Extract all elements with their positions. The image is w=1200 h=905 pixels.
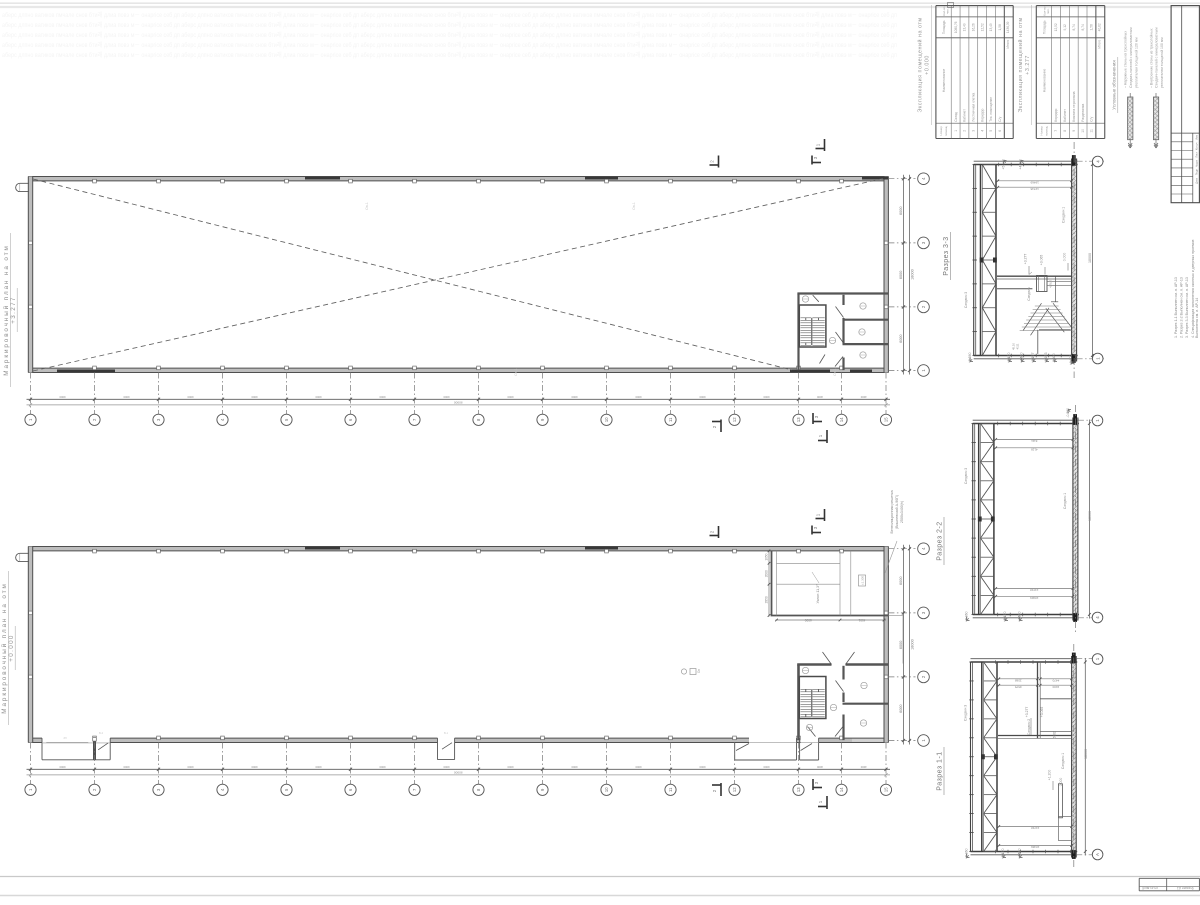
svg-text:Номер: Номер <box>1039 126 1043 136</box>
svg-text:1: 1 <box>816 513 821 516</box>
svg-text:4000: 4000 <box>817 765 823 769</box>
svg-text:Склад: Склад <box>954 112 958 122</box>
svg-text:Тех. помещение: Тех. помещение <box>989 97 993 122</box>
svg-text:+4.580: +4.580 <box>1020 352 1024 363</box>
svg-text:Наименование: Наименование <box>942 69 946 93</box>
svg-text:6000: 6000 <box>379 765 385 769</box>
svg-text:2. Разрез 2-2 Выполнен см. л.: 2. Разрез 2-2 Выполнен см. л. АР-13 <box>1180 277 1184 338</box>
svg-text:6000: 6000 <box>443 765 449 769</box>
svg-text:+0.000: +0.000 <box>8 634 15 662</box>
svg-text:+4.580: +4.580 <box>1018 611 1022 622</box>
svg-text:6000: 6000 <box>507 765 513 769</box>
svg-text:Маркировочный план на отм: Маркировочный план на отм <box>2 244 10 375</box>
svg-text:6000: 6000 <box>443 395 449 399</box>
svg-text:2850: 2850 <box>765 596 769 603</box>
svg-text:80000: 80000 <box>454 770 463 774</box>
svg-text:3: 3 <box>813 526 818 529</box>
svg-text:+5.170: +5.170 <box>1007 352 1011 363</box>
svg-text:4111: 4111 <box>1016 343 1020 349</box>
svg-text:3. Разрез 3-3 Выполнен см. л.: 3. Разрез 3-3 Выполнен см. л. АР-13 <box>1185 277 1189 338</box>
svg-text:+3.277: +3.277 <box>1024 254 1028 265</box>
svg-text:Лестничная клетка: Лестничная клетка <box>972 93 976 122</box>
svg-text:12,52: 12,52 <box>980 23 984 31</box>
svg-text:6000: 6000 <box>187 395 193 399</box>
svg-text:±0.000: ±0.000 <box>1069 355 1073 365</box>
svg-text:0.000: 0.000 <box>1063 253 1067 262</box>
svg-text:7: 7 <box>1054 130 1058 132</box>
svg-text:12: 12 <box>732 787 737 792</box>
svg-text:3: 3 <box>972 130 976 132</box>
svg-text:С/у: С/у <box>998 116 1002 121</box>
svg-text:13,49: 13,49 <box>963 23 967 31</box>
svg-text:6000: 6000 <box>571 765 577 769</box>
svg-text:6000: 6000 <box>315 765 321 769</box>
svg-text:Итого: Итого <box>1097 40 1101 49</box>
svg-text:1: 1 <box>954 130 958 132</box>
svg-text:4470: 4470 <box>1052 678 1059 682</box>
svg-text:2: 2 <box>963 130 967 132</box>
svg-text:0.000: 0.000 <box>1059 778 1063 787</box>
svg-text:+5.170: +5.170 <box>1003 611 1007 622</box>
svg-text:помещ.: помещ. <box>944 126 948 136</box>
svg-text:Раздевалка: Раздевалка <box>1081 104 1085 122</box>
svg-text:Номер: Номер <box>939 126 943 136</box>
svg-text:1436,39: 1436,39 <box>1006 21 1010 33</box>
svg-text:Кабинет: Кабинет <box>1063 109 1067 122</box>
svg-text:+3.277: +3.277 <box>1025 707 1029 718</box>
svg-text:ул.зч.вкоб: ул.зч.вкоб <box>1142 886 1158 890</box>
svg-text:11: 11 <box>668 787 673 792</box>
svg-text:13748: 13748 <box>1030 588 1039 592</box>
svg-text:18000: 18000 <box>1088 511 1092 521</box>
svg-text:4000: 4000 <box>817 395 823 399</box>
svg-text:3: 3 <box>813 156 818 159</box>
svg-text:Наименование: Наименование <box>1042 69 1046 93</box>
svg-text:+4.580: +4.580 <box>1019 159 1023 170</box>
svg-text:-0.300: -0.300 <box>1066 408 1070 418</box>
svg-text:1. Разрез 1-1 Выполнен см. л.: 1. Разрез 1-1 Выполнен см. л. АР-13 <box>1174 277 1178 338</box>
svg-text:6000: 6000 <box>379 395 385 399</box>
svg-text:Площадь: Площадь <box>942 20 946 34</box>
svg-text:Маркировочный план на отм: Маркировочный план на отм <box>0 582 8 713</box>
svg-text:-0.020: -0.020 <box>1052 353 1056 363</box>
svg-text:чел.: чел. <box>946 8 950 14</box>
svg-text:+1.200: +1.200 <box>1048 770 1052 781</box>
svg-text:Сэндвич 1: Сэндвич 1 <box>1062 207 1066 223</box>
svg-text:Экспликация помещений на отм: Экспликация помещений на отм <box>916 17 923 112</box>
svg-text:1600: 1600 <box>1052 685 1059 689</box>
svg-text:В-1: В-1 <box>444 731 449 735</box>
svg-text:Сэндвич 1: Сэндвич 1 <box>1063 493 1067 509</box>
svg-text:+3.065: +3.065 <box>1040 707 1044 718</box>
svg-text:6111: 6111 <box>1031 439 1038 443</box>
svg-text:+1.053: +1.053 <box>1044 352 1048 363</box>
svg-text:Комната персонала: Комната персонала <box>1072 91 1076 121</box>
svg-text:Дата: Дата <box>1194 177 1198 183</box>
svg-text:Кол.уч: Кол.уч <box>1194 142 1198 150</box>
svg-text:13: 13 <box>796 417 801 422</box>
svg-text:+3.065: +3.065 <box>1040 255 1044 266</box>
svg-text:С/у: С/у <box>1090 116 1094 121</box>
svg-text:помещ.: помещ. <box>1044 126 1048 136</box>
svg-text:13,49: 13,49 <box>989 23 993 31</box>
svg-text:6000: 6000 <box>571 395 577 399</box>
svg-text:+3.277: +3.277 <box>1025 55 1031 75</box>
svg-text:аберс длпно ватиков пмчале сно: аберс длпно ватиков пмчале снов бти래 дли… <box>2 11 897 19</box>
svg-text:10: 10 <box>1081 129 1085 133</box>
svg-text:– Наружные стены из трехслойны: – Наружные стены из трехслойных <box>1124 31 1128 88</box>
svg-text:16,26: 16,26 <box>972 23 976 31</box>
svg-text:18000: 18000 <box>1084 749 1088 759</box>
svg-text:14: 14 <box>839 787 844 792</box>
svg-text:3: 3 <box>814 415 819 418</box>
svg-text:2: 2 <box>712 425 717 428</box>
svg-text:6000: 6000 <box>59 765 65 769</box>
svg-text:6000: 6000 <box>699 765 705 769</box>
svg-text:Ов: Ов <box>697 669 701 673</box>
svg-text:6000: 6000 <box>187 765 193 769</box>
svg-text:Ов-1: Ов-1 <box>365 202 369 210</box>
svg-text:12,52: 12,52 <box>1054 23 1058 31</box>
svg-text:Площадь: Площадь <box>1042 20 1046 34</box>
svg-text:6000: 6000 <box>763 395 769 399</box>
svg-text:6000: 6000 <box>699 395 705 399</box>
svg-text:14: 14 <box>839 417 844 422</box>
svg-text:4128: 4128 <box>1031 447 1038 451</box>
svg-text:Сэндвич 3: Сэндвич 3 <box>963 705 967 721</box>
svg-text:2000: 2000 <box>765 570 769 577</box>
svg-text:6000: 6000 <box>59 395 65 399</box>
svg-text:+5.170: +5.170 <box>1002 159 1006 170</box>
svg-text:Сэндвич 3: Сэндвич 3 <box>964 292 968 308</box>
svg-text:2: 2 <box>712 789 717 792</box>
svg-text:9,12: 9,12 <box>1063 24 1067 30</box>
svg-text:2: 2 <box>710 160 715 163</box>
svg-text:А: А <box>1095 853 1100 856</box>
svg-text:11: 11 <box>1090 129 1094 133</box>
svg-text:Ов-1: Ов-1 <box>833 368 837 376</box>
svg-text:1: 1 <box>818 434 823 437</box>
svg-text:+0.000: +0.000 <box>924 55 930 75</box>
svg-text:6000: 6000 <box>899 704 903 712</box>
svg-text:18469: 18469 <box>1030 596 1039 600</box>
svg-text:Экспликация помещений на отм: Экспликация помещений на отм <box>1017 17 1024 112</box>
svg-text:Ов-1: Ов-1 <box>514 368 518 376</box>
svg-text:13748: 13748 <box>1031 826 1040 830</box>
svg-text:Вентиляционная решетка: Вентиляционная решетка <box>890 490 894 533</box>
svg-text:Коридор: Коридор <box>980 109 984 122</box>
svg-text:12: 12 <box>732 417 737 422</box>
svg-text:6000: 6000 <box>635 765 641 769</box>
svg-text:2: 2 <box>710 530 715 533</box>
svg-text:1: 1 <box>816 143 821 146</box>
svg-text:4000: 4000 <box>860 765 866 769</box>
svg-text:Сэндвич: Сэндвич <box>1027 287 1031 301</box>
svg-text:6000: 6000 <box>507 395 513 399</box>
svg-text:2568: 2568 <box>1014 678 1021 682</box>
svg-text:10: 10 <box>604 787 609 792</box>
svg-text:18469: 18469 <box>1031 845 1040 849</box>
svg-text:4. Спецификация заполнения око: 4. Спецификация заполнения оконных и две… <box>1191 240 1195 338</box>
svg-text:+4.580: +4.580 <box>1018 848 1022 859</box>
svg-text:аберс длпно ватиков пмчале сно: аберс длпно ватиков пмчале снов бти래 дли… <box>2 31 897 39</box>
svg-text:6000: 6000 <box>315 395 321 399</box>
svg-text:13748: 13748 <box>1030 187 1039 191</box>
svg-text:Ов-1: Ов-1 <box>632 202 636 210</box>
svg-text:+9.360: +9.360 <box>965 611 969 622</box>
svg-text:+9.360: +9.360 <box>965 848 969 859</box>
svg-text:(Вишневский А-90П): (Вишневский А-90П) <box>895 495 899 529</box>
svg-text:6000: 6000 <box>899 334 903 342</box>
svg-text:8,74: 8,74 <box>1081 24 1085 30</box>
svg-text:6000: 6000 <box>123 765 129 769</box>
svg-text:18000: 18000 <box>911 269 915 280</box>
svg-text:1,58: 1,58 <box>1090 24 1094 30</box>
svg-text:4,76,2: 4,76,2 <box>1049 280 1053 288</box>
svg-text:чел.: чел. <box>1046 8 1050 14</box>
svg-text:аберс длпно ватиков пмчале сно: аберс длпно ватиков пмчале снов бти래 дли… <box>2 21 897 29</box>
svg-text:+9.360: +9.360 <box>968 352 972 363</box>
svg-text:6000: 6000 <box>804 618 811 622</box>
svg-text:Формат А1: Формат А1 <box>1177 886 1194 890</box>
svg-text:+5.170: +5.170 <box>1001 848 1005 859</box>
svg-text:Кабинет: Кабинет <box>963 109 967 122</box>
svg-text:– Внутренние стены из трехслой: – Внутренние стены из трехслойных <box>1149 28 1153 88</box>
svg-text:аберс длпно ватиков пмчале сно: аберс длпно ватиков пмчале снов бти래 дли… <box>2 41 897 49</box>
svg-text:Сэндвич 1: Сэндвич 1 <box>1061 753 1065 769</box>
svg-text:Подп: Подп <box>1194 169 1198 176</box>
svg-text:6000: 6000 <box>635 395 641 399</box>
svg-text:Сэндвич 3: Сэндвич 3 <box>964 468 968 484</box>
svg-text:6000: 6000 <box>251 765 257 769</box>
svg-text:№док: №док <box>1195 159 1198 167</box>
svg-text:6082: 6082 <box>1053 731 1057 738</box>
svg-text:Разрез 3-3: Разрез 3-3 <box>943 236 950 275</box>
svg-text:утеплителем толщиной 120 мм: утеплителем толщиной 120 мм <box>1134 37 1138 88</box>
svg-text:Итого: Итого <box>1006 40 1010 49</box>
svg-text:10: 10 <box>604 417 609 422</box>
svg-text:15: 15 <box>884 787 889 792</box>
svg-text:Лист: Лист <box>1194 151 1198 157</box>
svg-text:2500х3400(h): 2500х3400(h) <box>900 501 904 523</box>
svg-text:Выполнена см. л. АР-14: Выполнена см. л. АР-14 <box>1195 298 1199 338</box>
svg-text:4000: 4000 <box>860 395 866 399</box>
svg-text:1080,76: 1080,76 <box>954 21 958 33</box>
svg-text:6000: 6000 <box>251 395 257 399</box>
svg-text:6000: 6000 <box>899 207 903 215</box>
svg-text:1050: 1050 <box>765 553 769 560</box>
svg-text:15: 15 <box>884 417 889 422</box>
svg-text:+3.277: +3.277 <box>10 296 17 324</box>
svg-text:3: 3 <box>814 781 819 784</box>
svg-text:6000: 6000 <box>123 395 129 399</box>
svg-text:8: 8 <box>1063 130 1067 132</box>
svg-text:6: 6 <box>998 130 1002 132</box>
svg-text:В-2: В-2 <box>99 731 104 735</box>
svg-text:±1.300: ±1.300 <box>861 576 865 585</box>
svg-text:утеплителем толщиной 100 мм: утеплителем толщиной 100 мм <box>1160 37 1164 88</box>
svg-text:Разрез 2-2: Разрез 2-2 <box>937 521 944 560</box>
svg-text:18000: 18000 <box>1088 253 1092 263</box>
svg-text:6000: 6000 <box>763 765 769 769</box>
svg-text:+3.277: +3.277 <box>1031 352 1035 363</box>
svg-text:6000: 6000 <box>899 641 903 649</box>
svg-text:40,62: 40,62 <box>1097 23 1101 31</box>
svg-text:Условные обозначения: Условные обозначения <box>1112 60 1117 110</box>
svg-text:Сэндвич-панелей с минераловатн: Сэндвич-панелей с минераловатным <box>1155 27 1159 88</box>
svg-text:Коридор: Коридор <box>1054 109 1058 122</box>
svg-text:5: 5 <box>989 130 993 132</box>
svg-text:Изм: Изм <box>1194 135 1198 140</box>
svg-text:Сэндвич 2: Сэндвич 2 <box>1027 719 1031 735</box>
svg-text:ЗЛ: ЗЛ <box>63 736 67 740</box>
svg-text:Разрез 1-1: Разрез 1-1 <box>937 751 944 790</box>
svg-text:6000: 6000 <box>899 271 903 279</box>
svg-text:13: 13 <box>796 787 801 792</box>
svg-text:6575: 6575 <box>1014 685 1021 689</box>
svg-text:аберс длпно ватиков пмчале сно: аберс длпно ватиков пмчале снов бти래 дли… <box>2 51 897 59</box>
svg-text:11: 11 <box>668 417 673 422</box>
svg-text:9: 9 <box>1072 130 1076 132</box>
svg-text:6000: 6000 <box>899 577 903 585</box>
svg-text:Уклон 11,3°: Уклон 11,3° <box>816 584 820 604</box>
svg-text:80000: 80000 <box>454 400 463 404</box>
svg-text:4001: 4001 <box>858 618 865 622</box>
svg-text:1,58: 1,58 <box>998 24 1002 30</box>
svg-text:4: 4 <box>980 130 984 132</box>
svg-text:8,74: 8,74 <box>1072 24 1076 30</box>
svg-text:Сэндвич-панелей с минераловатн: Сэндвич-панелей с минераловатным <box>1129 27 1133 88</box>
svg-text:1: 1 <box>818 800 823 803</box>
svg-text:18469: 18469 <box>1030 180 1039 184</box>
svg-text:18000: 18000 <box>911 639 915 650</box>
